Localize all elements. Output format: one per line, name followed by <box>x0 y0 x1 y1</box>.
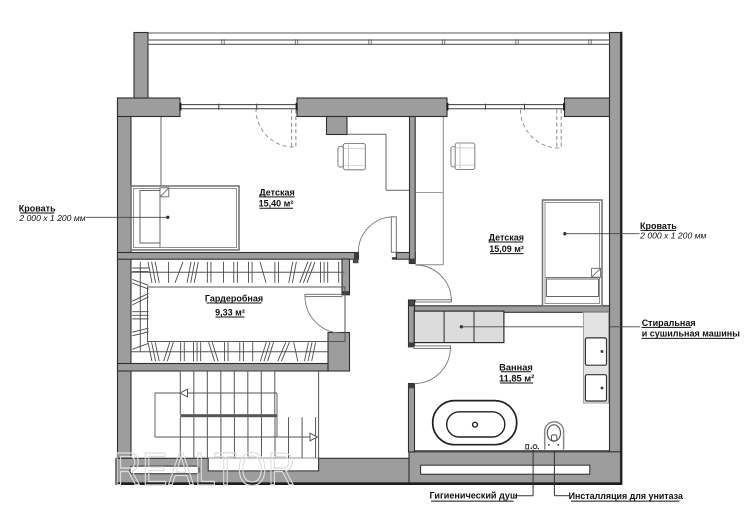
svg-text:Детская: Детская <box>489 232 524 242</box>
svg-text:11,85 м²: 11,85 м² <box>499 373 534 383</box>
svg-text:REALTOR: REALTOR <box>114 443 296 495</box>
svg-text:15,09 м²: 15,09 м² <box>489 244 524 254</box>
svg-text:Гигиенический душ: Гигиенический душ <box>429 491 517 501</box>
svg-text:Инсталляция для унитаза: Инсталляция для унитаза <box>569 491 683 501</box>
svg-text:и сушильная машины: и сушильная машины <box>642 329 741 339</box>
svg-text:2 000 х 1 200 мм: 2 000 х 1 200 мм <box>639 230 706 240</box>
svg-text:9,33 м²: 9,33 м² <box>215 307 245 317</box>
svg-text:15,40 м²: 15,40 м² <box>259 199 294 209</box>
svg-text:Детская: Детская <box>259 187 294 197</box>
svg-text:Гардеробная: Гардеробная <box>205 293 263 303</box>
svg-text:Стиральная: Стиральная <box>642 318 696 328</box>
svg-text:Ванная: Ванная <box>499 362 533 372</box>
svg-text:2 000 х 1 200 мм: 2 000 х 1 200 мм <box>18 213 85 223</box>
